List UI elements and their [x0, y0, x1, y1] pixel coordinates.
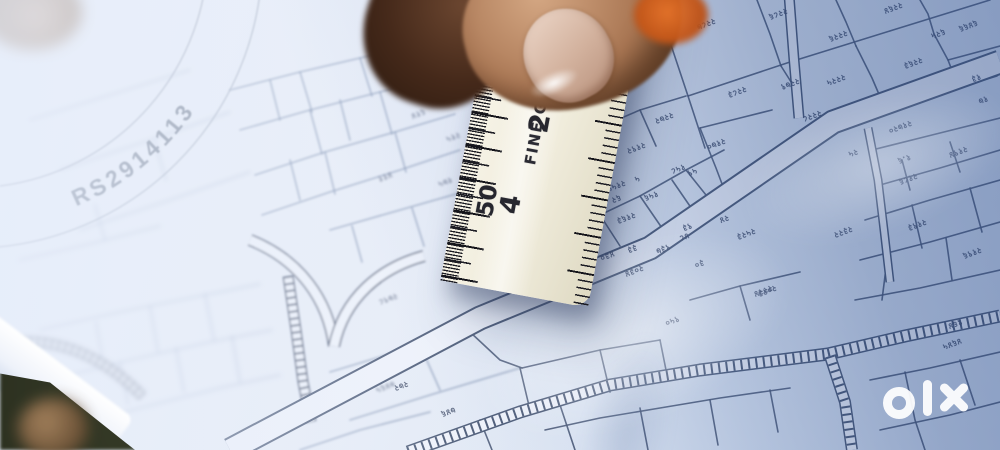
parcel-label: ६२५: [929, 26, 947, 42]
parcel-label: २२२५: [825, 71, 847, 88]
parcel-label: ९६४: [946, 316, 964, 332]
parcel-label: २१८६: [897, 170, 919, 187]
parcel-label: २०३४: [623, 262, 645, 279]
parcel-label: १३: [969, 71, 982, 85]
stamp-serial-text: RS2914113: [67, 97, 199, 211]
parcel-label: २४: [717, 212, 730, 226]
parcel-label: २१७०: [705, 135, 727, 152]
parcel-label: १५६: [642, 188, 660, 204]
parcel-label: ७४६: [439, 404, 457, 420]
parcel-label: २७९८: [377, 290, 399, 307]
parcel-label: १७५: [436, 174, 454, 190]
parcel-label: ९३७: [654, 241, 672, 257]
svg-text:RS2914113: RS2914113: [67, 97, 199, 211]
parcel-label: ४६४५: [941, 335, 963, 352]
parcel-label: २१९२: [625, 139, 647, 156]
parcel-label: ४११: [376, 169, 394, 185]
photo-of-plot-map: २२८७२२८६२२८३२२७९२२७२२२६४२२२६६२५६४६६२२६३२…: [0, 0, 1000, 450]
parcel-label: ५: [633, 173, 642, 185]
parcel-label: २२८६: [767, 5, 789, 22]
parcel-label: २०२३: [756, 282, 778, 299]
parcel-label: २१७२०: [887, 117, 914, 136]
parcel-label: २२६४: [882, 0, 904, 17]
parcel-label: २१६३: [615, 209, 637, 226]
parcel-label: ५९: [685, 165, 698, 179]
parcel-label: ६४६६: [957, 17, 979, 34]
olx-watermark: olx: [883, 376, 973, 430]
olx-watermark-text: olx: [883, 376, 884, 377]
parcel-label: ६१४: [409, 106, 427, 122]
parcel-label: २१९४: [947, 143, 969, 160]
parcel-label: ६२: [609, 192, 622, 206]
parcel-label: ३३: [625, 242, 638, 256]
parcel-label: २१९३: [906, 216, 928, 233]
parcel-label: २१५: [444, 129, 462, 145]
parcel-label: २५२३: [735, 225, 757, 242]
parcel-label: २२७९: [779, 75, 801, 92]
parcel-label: १५८: [669, 161, 687, 177]
parcel-label: २१९६: [961, 244, 983, 261]
parcel-label: २२२८: [801, 107, 823, 124]
parcel-label: २२८३: [726, 83, 748, 100]
background-blur-object: [18, 398, 88, 450]
parcel-label: १.६: [896, 151, 913, 166]
parcel-label: ४३०: [598, 248, 616, 264]
parcel-label: ९५०: [663, 313, 681, 329]
parcel-label: २२६३: [902, 54, 924, 71]
parcel-label: ७४६५: [374, 378, 396, 395]
olx-letter-o-icon: [883, 387, 915, 419]
parcel-label: २२२६: [827, 27, 849, 44]
parcel-label: २३२२: [832, 223, 854, 240]
parcel-label: २५: [846, 146, 859, 160]
parcel-label: ३०: [692, 257, 705, 271]
parcel-label: १७: [976, 93, 989, 107]
olx-letter-l-icon: [923, 380, 932, 416]
parcel-label: २२७२: [653, 109, 675, 126]
